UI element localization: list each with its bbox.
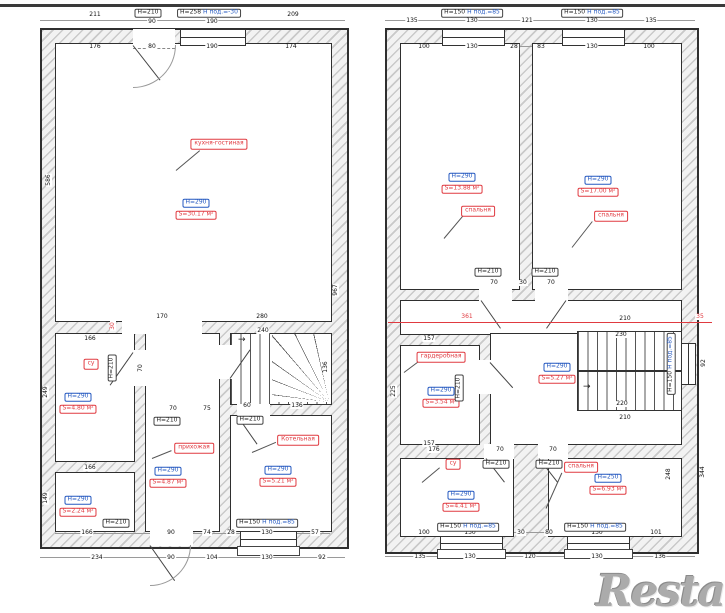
dimension-line [40, 557, 345, 558]
dimension-label: 176 [88, 44, 101, 50]
room-area-boiler: S=5.21 м² [259, 478, 296, 487]
window-sill-height: H под.=-30 [203, 9, 238, 16]
room-height-kitchen: H=290 [183, 199, 210, 208]
dimension-label: 30 [516, 530, 526, 536]
dimension-label: 90 [166, 530, 176, 536]
dimension-label: 83 [536, 44, 546, 50]
window-label-boiler: H=150H под.=85 [236, 519, 298, 528]
wardrobe-door-opening [479, 360, 491, 394]
stair-door-opening-f1 [219, 345, 232, 379]
room-height-hallway: H=290 [155, 467, 182, 476]
dimension-label: 70 [495, 447, 505, 453]
window-sill-height: H под.=85 [463, 523, 496, 530]
page-edge-line [0, 4, 725, 7]
dimension-line [40, 20, 345, 21]
room-bedroom-right [532, 43, 682, 290]
room-name-bedroom-right: спальня [594, 211, 628, 222]
window-sill-height: H под.=85 [262, 519, 295, 526]
dimension-label: 361 [460, 314, 473, 320]
dimension-label: 190 [205, 44, 218, 50]
dimension-label: 74 [202, 530, 212, 536]
dimension-label: 80 [544, 530, 554, 536]
dimension-label: 70 [548, 447, 558, 453]
window-label-wc-f2: H=150H под.=85 [437, 523, 499, 532]
dimension-label: 135 [644, 18, 657, 24]
dimension-label: 210 [618, 415, 631, 421]
room-kitchen-living [55, 43, 332, 322]
window-label-f2: H=150H под.=85 [441, 9, 503, 18]
dimension-label: 166 [83, 465, 96, 471]
dimension-label: 135 [413, 554, 426, 560]
door-height-label: H=210 [455, 375, 464, 402]
dimension-label: 136 [653, 554, 666, 560]
dimension-label: 174 [284, 44, 297, 50]
room-bedroom-left [400, 43, 520, 290]
room-height-bedroom-small: H=250 [595, 474, 622, 483]
dimension-label: 130 [585, 18, 598, 24]
dimension-label: 100 [642, 44, 655, 50]
dimension-label: 70 [546, 280, 556, 286]
door-height-label: H=210 [483, 460, 510, 469]
dimension-label: 586 [46, 173, 52, 186]
dimension-label: 230 [614, 332, 627, 338]
dimension-label: 130 [463, 554, 476, 560]
dimension-label: 92 [701, 358, 707, 368]
dimension-label: 92 [317, 555, 327, 561]
dimension-label: 90 [147, 19, 157, 25]
dimension-label: 120 [523, 554, 536, 560]
dimension-label: 234 [90, 555, 103, 561]
dimension-label: 166 [80, 530, 93, 536]
window-height: H=150 [567, 523, 588, 530]
room-height-wc-f1: H=290 [65, 393, 92, 402]
dimension-label: 170 [155, 314, 168, 320]
dimension-label: 130 [465, 18, 478, 24]
dimension-line [385, 556, 695, 557]
dimension-label: 90 [166, 555, 176, 561]
dimension-label: 30 [110, 321, 116, 331]
dimension-label: 280 [255, 314, 268, 320]
room-height-wardrobe: H=290 [428, 387, 455, 396]
dimension-label: 166 [83, 336, 96, 342]
floorplan-canvas: → H=210 H=258H под.=-30 кухня-гостиная H… [0, 0, 725, 613]
room-area-wc-f2: S=4.41 м² [442, 503, 479, 512]
corridor-f2 [400, 300, 682, 335]
window-sill-height: H под.=85 [667, 336, 674, 369]
room-name-wc-f2: су [446, 459, 461, 470]
dimension-label: 211 [88, 12, 101, 18]
stair-direction-arrow: → [583, 383, 591, 392]
room-name-boiler: Котельная [277, 435, 319, 446]
dimension-label: 130 [260, 530, 273, 536]
dimension-label: 100 [417, 530, 430, 536]
room-area-wc-f1: S=4.80 м² [59, 405, 96, 414]
door-height-label: H=210 [532, 268, 559, 277]
dimension-label: 70 [489, 280, 499, 286]
window-sill-height: H под.=85 [590, 523, 623, 530]
room-name-bedroom-small: спальня [564, 462, 598, 473]
watermark-logo: Restate [596, 566, 725, 613]
window-height: H=150 [444, 9, 465, 16]
room-area-bedroom-left: S=13.88 м² [442, 185, 483, 194]
dimension-label: 130 [465, 44, 478, 50]
room-area-kitchen: S=30.17 м² [176, 211, 217, 220]
dimension-label: 344 [700, 465, 706, 478]
dimension-label: 101 [649, 530, 662, 536]
window-label-top-f1: H=258H под.=-30 [177, 9, 241, 18]
dimension-label: 220 [615, 401, 628, 407]
staircase-winder-f1 [272, 334, 329, 402]
window-label-bedroom-small: H=150H под.=85 [564, 523, 626, 532]
dimension-label: 75 [202, 406, 212, 412]
room-name-wardrobe: гардеробная [417, 352, 466, 363]
room-area-hall: S=5.27 м² [538, 375, 575, 384]
room-name-bedroom-left: спальня [461, 206, 495, 217]
dimension-label: 104 [205, 555, 218, 561]
dimension-label: 130 [260, 555, 273, 561]
dimension-label: 70 [138, 363, 144, 373]
dimension-label: 121 [520, 18, 533, 24]
kitchen-hall-opening [122, 319, 202, 334]
dimension-label: 149 [43, 491, 49, 504]
dimension-label: 135 [405, 18, 418, 24]
window-right-wall-f2 [681, 343, 696, 385]
room-height-bedroom-right: H=290 [585, 176, 612, 185]
dimension-label: 57 [310, 530, 320, 536]
dimension-label: 80 [147, 44, 157, 50]
dimension-label: 28 [226, 530, 236, 536]
window-label-f2: H=150H под.=85 [561, 9, 623, 18]
window-height: H=150 [239, 519, 260, 526]
door-height-label: H=210 [108, 355, 117, 382]
room-height-wc-f2: H=290 [448, 491, 475, 500]
door-height-label: H=210 [103, 519, 130, 528]
dimension-label: 240 [256, 328, 269, 334]
door-swing-arc [150, 545, 191, 586]
dimension-label: 60 [242, 403, 252, 409]
door-height-label: H=210 [475, 268, 502, 277]
window-height: H=150 [564, 9, 585, 16]
dimension-label: 28 [509, 44, 519, 50]
window-height: H=150 [667, 371, 674, 392]
dimension-label: 130 [585, 44, 598, 50]
dimension-label: 136 [290, 403, 303, 409]
dimension-label: 130 [590, 554, 603, 560]
dimension-label: 30 [518, 280, 528, 286]
bedroom-right-door-opening [535, 289, 568, 301]
room-area-bedroom-small: S=6.93 м² [589, 486, 626, 495]
dimension-label: 967 [333, 283, 339, 296]
room-area-bedroom-right: S=17.00 м² [578, 188, 619, 197]
room-height-boiler: H=290 [265, 466, 292, 475]
dimension-label: 225 [391, 384, 397, 397]
window-label-right-f2: H=150H под.=85 [667, 333, 676, 395]
dimension-label: 136 [323, 360, 329, 373]
dimension-label: 249 [43, 385, 49, 398]
dimension-label: 70 [168, 406, 178, 412]
dimension-label: 176 [427, 447, 440, 453]
red-dimension-line [388, 322, 712, 323]
dimension-label: 248 [666, 467, 672, 480]
dimension-label: 210 [618, 316, 631, 322]
room-height-bedroom-left: H=290 [449, 173, 476, 182]
dimension-label: 190 [205, 19, 218, 25]
room-height-hall: H=290 [544, 363, 571, 372]
room-name-wc-f1: су [84, 359, 99, 370]
window-sill-height: H под.=85 [587, 9, 620, 16]
door-height-label: H=210 [135, 9, 162, 18]
room-area-hallway: S=4.87 м² [149, 479, 186, 488]
room-name-kitchen: кухня-гостиная [190, 139, 247, 150]
window-height: H=150 [440, 523, 461, 530]
bedroom-left-door-opening [479, 289, 512, 301]
dimension-label: 209 [286, 12, 299, 18]
door-height-label: H=210 [237, 416, 264, 425]
room-name-hallway: прихожая [174, 443, 214, 454]
room-hallway-f1 [145, 333, 220, 532]
dimension-label: 157 [422, 336, 435, 342]
stair-direction-arrow: → [238, 336, 246, 345]
dimension-label: 35 [695, 314, 705, 320]
window-sill-height: H под.=85 [467, 9, 500, 16]
door-height-label: H=210 [154, 417, 181, 426]
window-height: H=258 [180, 9, 201, 16]
room-area-storage: S=2.24 м² [59, 508, 96, 517]
room-height-storage: H=290 [65, 496, 92, 505]
dimension-label: 100 [417, 44, 430, 50]
door-height-label: H=210 [536, 460, 563, 469]
